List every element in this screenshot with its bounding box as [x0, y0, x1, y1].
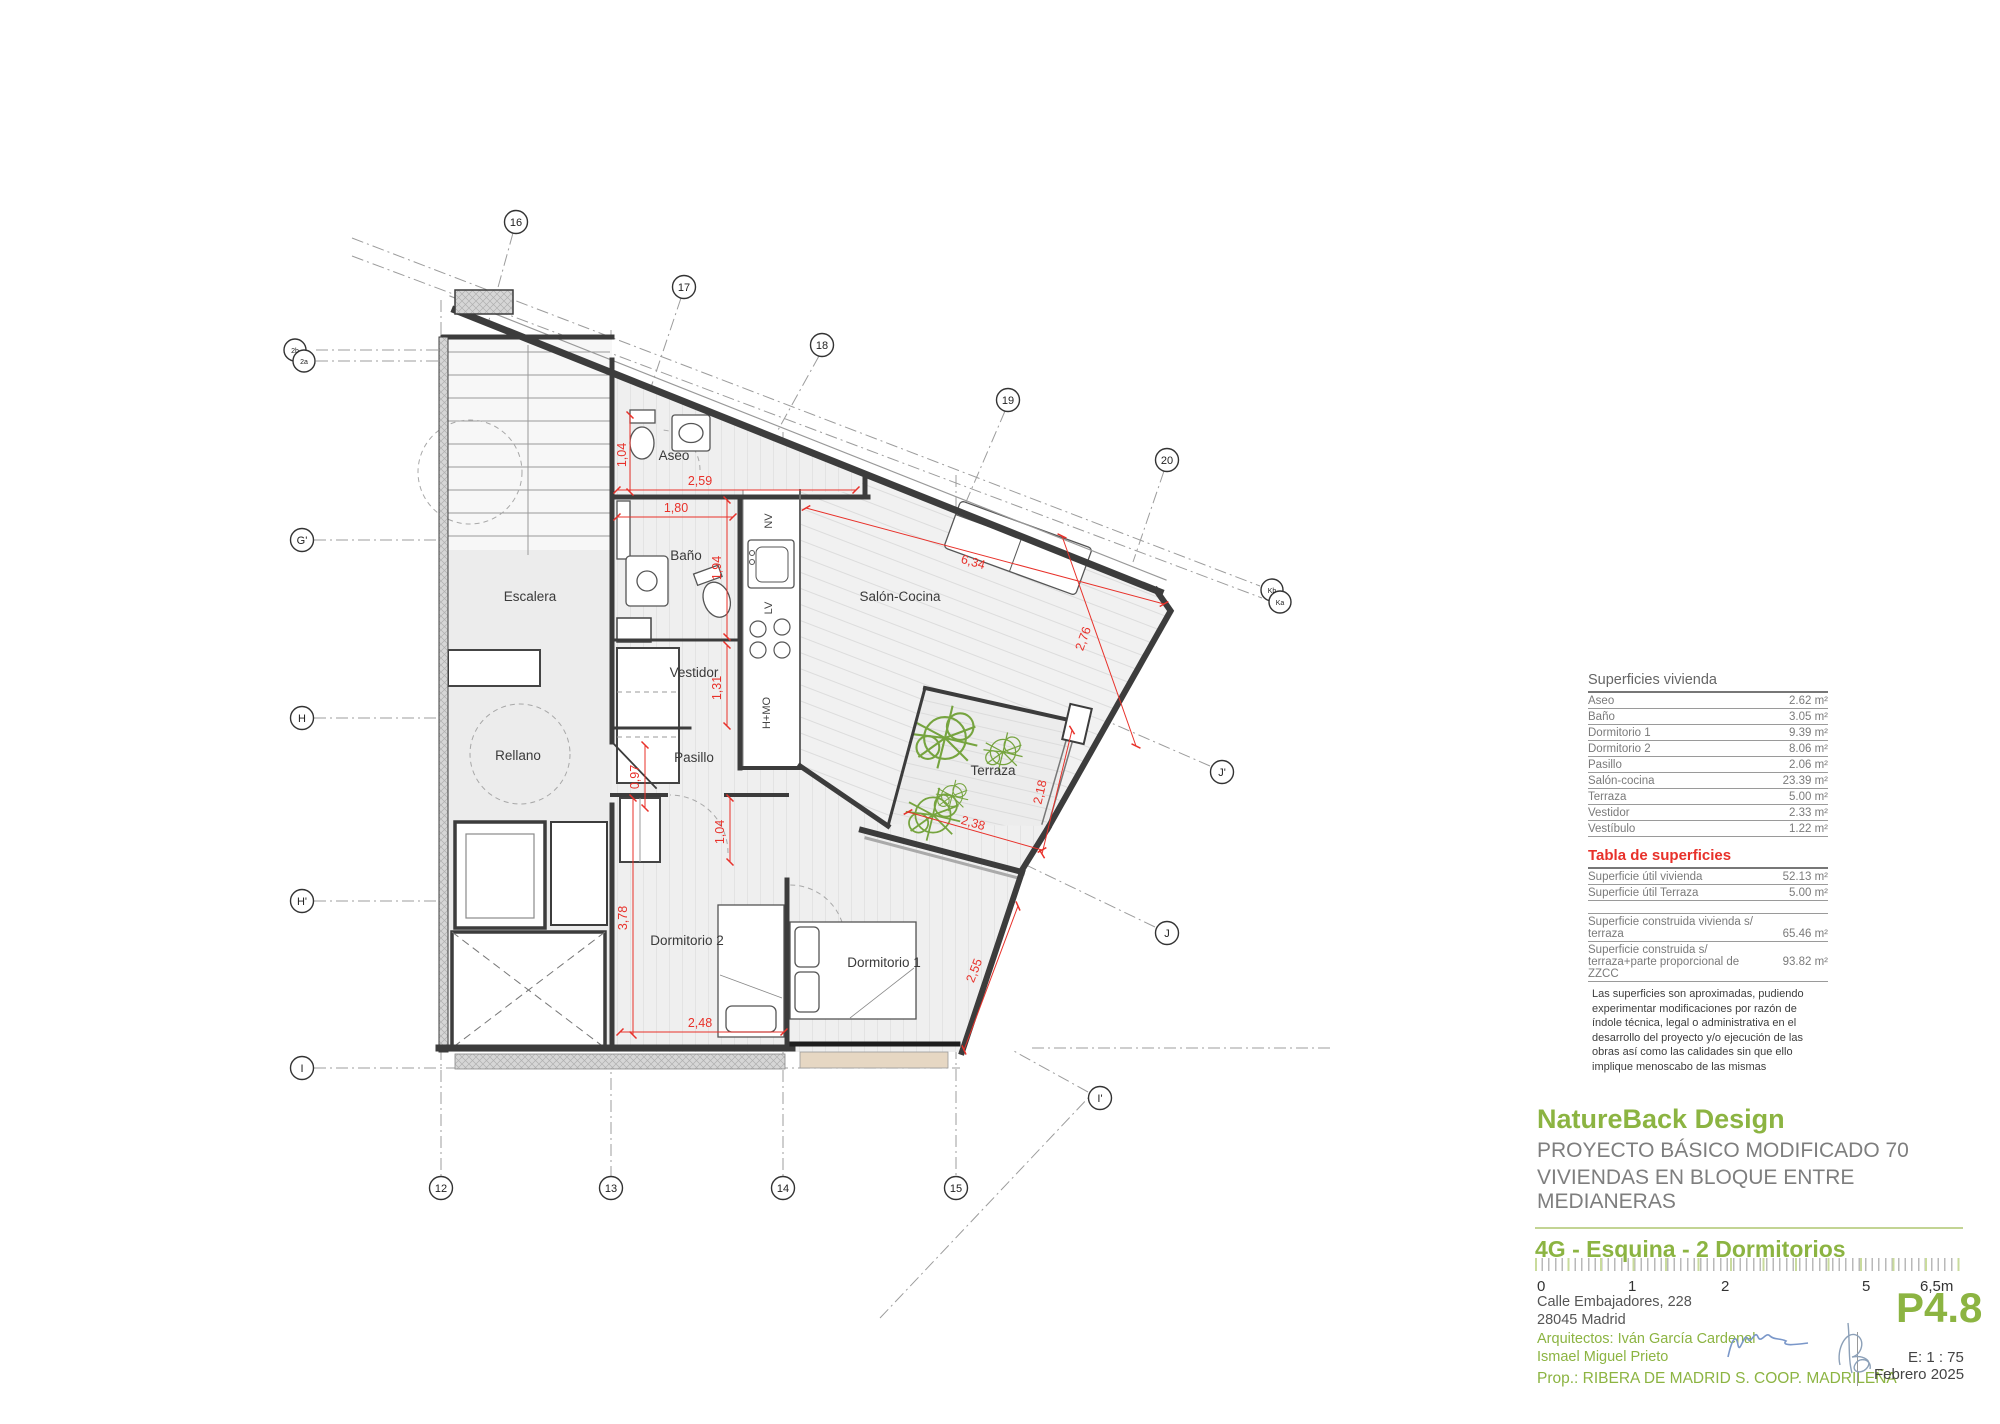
grid-bubble-j-prime: J'	[1211, 761, 1234, 784]
dim-bano-h: 1,94	[710, 556, 724, 580]
svg-text:2a: 2a	[300, 359, 308, 366]
grid-bubble-g-prime: G'	[291, 529, 314, 552]
svg-text:20: 20	[1161, 455, 1173, 467]
room-label-dorm2: Dormitorio 2	[650, 933, 724, 948]
table-row: Aseo2.62 m²	[1588, 693, 1828, 709]
room-label-vestidor: Vestidor	[670, 665, 719, 680]
grid-bubble-pair-left: 2b 2a	[284, 339, 315, 372]
table-row: Pasillo2.06 m²	[1588, 757, 1828, 773]
svg-text:H': H'	[297, 896, 307, 908]
appliance-label-hmo: H+MO	[761, 697, 773, 730]
dim-pasillo-w: 0,97	[628, 765, 642, 789]
svg-text:Kb: Kb	[1268, 588, 1277, 595]
grid-bubble-19: 19	[997, 389, 1020, 412]
dorm1-furniture	[790, 922, 916, 1019]
table-row: Salón-cocina23.39 m²	[1588, 773, 1828, 789]
dim-dorm2-w: 2,48	[688, 1016, 712, 1030]
scale-tick-label: 1	[1628, 1278, 1636, 1295]
grid-bubble-j: J	[1156, 922, 1179, 945]
room-label-aseo: Aseo	[659, 448, 690, 463]
grid-bubble-20: 20	[1156, 449, 1179, 472]
room-label-escalera: Escalera	[504, 589, 557, 604]
drawing-scale: E: 1 : 75	[1908, 1349, 1964, 1366]
room-label-salon: Salón-Cocina	[859, 589, 941, 604]
room-label-pasillo: Pasillo	[674, 750, 714, 765]
table-row: Superficie útil Terraza5.00 m²	[1588, 885, 1828, 901]
grid-bubble-15: 15	[945, 1177, 968, 1200]
table-row: Dormitorio 19.39 m²	[1588, 725, 1828, 741]
grid-bubble-13: 13	[600, 1177, 623, 1200]
totals-table-title: Tabla de superficies	[1588, 847, 1828, 869]
address-line2: 28045 Madrid	[1537, 1312, 1626, 1328]
landing-opening	[448, 650, 540, 686]
plan-sheet: 1,04 2,59 1,80 1,94 1,31 0,97 6,34 2,76 …	[0, 0, 2000, 1424]
grid-bubble-h-prime: H'	[291, 890, 314, 913]
architects-line2: Ismael Miguel Prieto	[1537, 1349, 1668, 1365]
appliance-label-nv: NV	[763, 513, 775, 529]
dim-aseo-w: 2,59	[688, 474, 712, 488]
table-row: Vestidor2.33 m²	[1588, 805, 1828, 821]
table-row: Terraza5.00 m²	[1588, 789, 1828, 805]
signature-marks	[1700, 1315, 1900, 1385]
svg-text:16: 16	[510, 217, 522, 229]
table-row: Baño3.05 m²	[1588, 709, 1828, 725]
studio-brand: NatureBack Design	[1537, 1104, 1785, 1135]
grid-bubble-pair-right: Kb Ka	[1261, 579, 1291, 613]
table-row: Superficie útil vivienda52.13 m²	[1588, 869, 1828, 885]
table-row: Superficie construida vivienda s/ terraz…	[1588, 913, 1828, 942]
table-row: Dormitorio 28.06 m²	[1588, 741, 1828, 757]
svg-text:15: 15	[950, 1183, 962, 1195]
svg-text:13: 13	[605, 1183, 617, 1195]
svg-text:J: J	[1164, 928, 1170, 940]
svg-text:14: 14	[777, 1183, 789, 1195]
surfaces-disclaimer: Las superficies son aproximadas, pudiend…	[1592, 987, 1820, 1074]
room-label-rellano: Rellano	[495, 748, 541, 763]
elevator-shafts	[452, 822, 607, 1048]
project-title-line1: PROYECTO BÁSICO MODIFICADO 70	[1537, 1139, 1997, 1163]
grid-bubble-h: H	[291, 707, 314, 730]
grid-bubble-17: 17	[673, 276, 696, 299]
grid-bubble-14: 14	[772, 1177, 795, 1200]
table-row: Vestíbulo1.22 m²	[1588, 821, 1828, 837]
svg-text:19: 19	[1002, 395, 1014, 407]
dim-aseo-h: 1,04	[615, 443, 629, 467]
svg-text:J': J'	[1218, 767, 1226, 779]
sheet-number: P4.8	[1896, 1284, 1982, 1332]
table-row: Superficie construida s/ terraza+parte p…	[1588, 942, 1828, 982]
surfaces-table-title: Superficies vivienda	[1588, 672, 1828, 693]
svg-text:I': I'	[1097, 1093, 1102, 1105]
dim-dorm2-h: 3,78	[616, 906, 630, 930]
svg-text:12: 12	[435, 1183, 447, 1195]
svg-text:Ka: Ka	[1276, 600, 1285, 607]
svg-text:17: 17	[678, 282, 690, 294]
room-label-bano: Baño	[670, 548, 702, 563]
floor-plan-drawing: 1,04 2,59 1,80 1,94 1,31 0,97 6,34 2,76 …	[0, 0, 1520, 1424]
divider-rule	[1535, 1227, 1963, 1229]
address-line1: Calle Embajadores, 228	[1537, 1294, 1692, 1310]
scale-tick-label: 5	[1862, 1278, 1870, 1295]
scale-tick-label: 0	[1537, 1278, 1545, 1295]
svg-text:G': G'	[297, 535, 308, 547]
grid-bubble-16: 16	[505, 211, 528, 234]
room-label-terraza: Terraza	[970, 763, 1016, 778]
svg-text:I: I	[300, 1063, 303, 1075]
grid-bubble-i-prime: I'	[1089, 1087, 1112, 1110]
appliance-label-lv: LV	[763, 601, 775, 614]
svg-text:H: H	[298, 713, 306, 725]
svg-text:2b: 2b	[291, 348, 299, 355]
svg-text:18: 18	[816, 340, 828, 352]
room-label-dorm1: Dormitorio 1	[847, 955, 921, 970]
grid-bubble-i: I	[291, 1057, 314, 1080]
scale-tick-label: 2	[1721, 1278, 1729, 1295]
scale-bar	[1535, 1258, 1963, 1271]
grid-bubble-18: 18	[811, 334, 834, 357]
dim-dorm2-door: 1,04	[713, 820, 727, 844]
surfaces-panel: Superficies vivienda Aseo2.62 m² Baño3.0…	[1588, 672, 1828, 982]
grid-bubble-12: 12	[430, 1177, 453, 1200]
project-title-line2: VIVIENDAS EN BLOQUE ENTRE MEDIANERAS	[1537, 1166, 1997, 1214]
dim-bano-w: 1,80	[664, 501, 688, 515]
